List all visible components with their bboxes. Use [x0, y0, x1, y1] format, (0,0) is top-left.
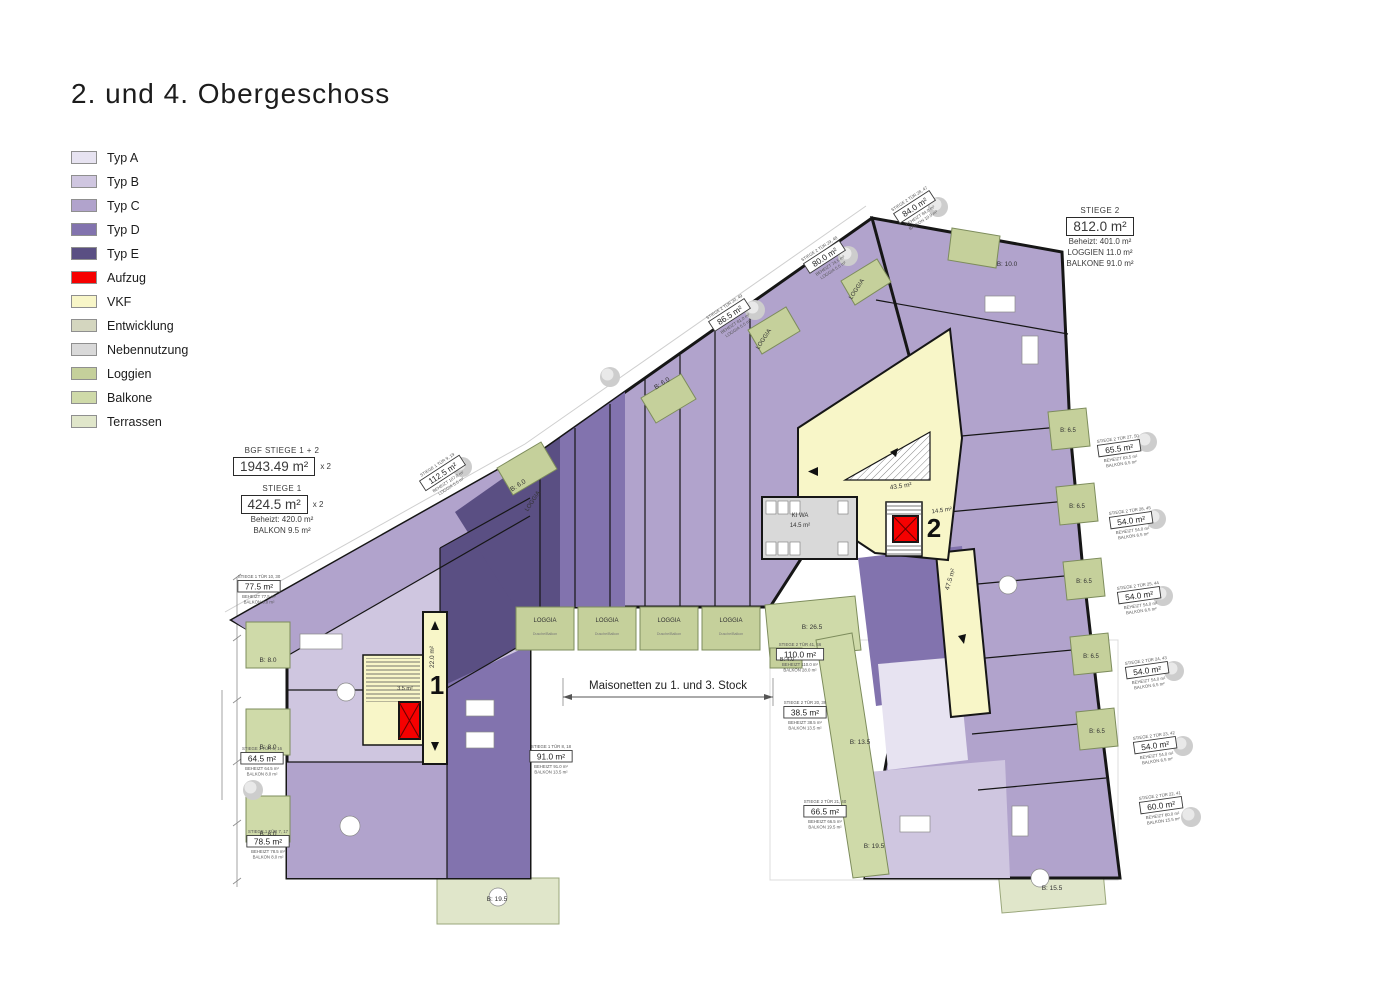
unit-area-value: 78.5 m²	[254, 837, 282, 847]
unit-label: STIEGE 2 TÜR 23, 4254.0 m²BEHEIZT 54.0 m…	[1132, 730, 1179, 766]
plan-area-label: B: 10.0	[997, 261, 1018, 268]
unit-area-value: 77.5 m²	[245, 582, 273, 592]
stair-marker: 2	[927, 513, 941, 543]
unit-label-line: BALKON 19.5 m²	[808, 825, 842, 830]
unit-label-line: BEHEIZT 38.5 m²	[788, 720, 822, 725]
loggia-cell-sub: Dusche/Balkon	[657, 632, 681, 636]
unit-typ-d	[447, 645, 530, 878]
unit-label-line: BALKON 8.0 m²	[247, 772, 278, 777]
unit-label-line: BEHEIZT 64.5 m²	[245, 766, 279, 771]
plan-area-label: B: 6.5	[1069, 504, 1085, 510]
unit-label: STIEGE 2 TÜR 26, 4554.0 m²BEHEIZT 54.0 m…	[1108, 505, 1155, 541]
plan-area-label: B: 15.5	[1042, 885, 1063, 892]
unit-label-door: STIEGE 2 TÜR 20, 39	[784, 700, 827, 705]
unit-label-line: BEHEIZT 78.5 m²	[251, 849, 285, 854]
unit-label: STIEGE 2 TÜR 27, 5065.5 m²BEHEIZT 63.5 m…	[1096, 433, 1143, 469]
unit-label: STIEGE 1 TÜR 10, 3077.5 m²BEHEIZT 77.5 m…	[238, 574, 281, 605]
unit-typ-c	[287, 762, 447, 878]
plan-area-label: 22.0 m²	[429, 645, 436, 668]
unit-label-line: BALKON 8.0 m²	[244, 600, 275, 605]
unit-area-value: 38.5 m²	[791, 708, 819, 718]
unit-label: STIEGE 2 TÜR 21, 4066.5 m²BEHEIZT 66.5 m…	[804, 799, 847, 830]
loggia-cell	[640, 607, 698, 650]
plan-area-label: KI WA	[792, 513, 809, 519]
unit-label-door: STIEGE 2 TÜR 21, 40	[804, 799, 847, 804]
unit-label-line: BALKON 28.0 m²	[783, 668, 817, 673]
loggia-cell-label: LOGGIA	[595, 618, 618, 624]
loggia-cell	[516, 607, 574, 650]
floor-plan-page: 2. und 4. Obergeschoss Typ ATyp BTyp CTy…	[0, 0, 1387, 1000]
stair-marker: 1	[430, 670, 444, 700]
unit-area-value: 66.5 m²	[811, 807, 839, 817]
unit-label-door: STIEGE 1 TÜR 8, 18	[531, 744, 572, 749]
unit-label-door: STIEGE 1 TÜR 10, 30	[238, 574, 281, 579]
plan-area-label: B: 8.0	[260, 744, 277, 751]
loggia-cell-sub: Dusche/Balkon	[533, 632, 557, 636]
plan-area-label: B: 6.5	[1076, 579, 1092, 585]
maisonette-note: Maisonetten zu 1. und 3. Stock	[589, 680, 747, 692]
plan-area-label: B: 6.5	[1089, 729, 1105, 735]
plan-area-label: B: 13.5	[850, 739, 871, 746]
unit-typ-d	[560, 392, 625, 607]
loggia-cell-sub: Dusche/Balkon	[595, 632, 619, 636]
plan-area-label: B: 4.0	[780, 657, 794, 663]
unit-label: STIEGE 1 TÜR 8, 1891.0 m²BEHEIZT 91.0 m²…	[530, 744, 572, 775]
tree	[1181, 807, 1201, 827]
plan-area-label: B: 8.0	[260, 831, 277, 838]
tree	[243, 780, 263, 800]
unit-label: STIEGE 2 TÜR 20, 3938.5 m²BEHEIZT 38.5 m…	[784, 700, 827, 731]
plan-area-label: B: 19.5	[487, 896, 508, 903]
loggia-cell	[702, 607, 760, 650]
unit-label: STIEGE 2 TÜR 25, 4454.0 m²BEHEIZT 54.0 m…	[1116, 580, 1163, 616]
plan-area-label: 3.5 m²	[397, 686, 413, 692]
unit-area-value: 64.5 m²	[248, 754, 276, 764]
tree	[600, 367, 620, 387]
stair-treads-2	[886, 502, 922, 515]
unit-label: STIEGE 2 TÜR 22, 4160.0 m²BEHEIZT 60.0 m…	[1138, 790, 1185, 826]
plan-area-label: B: 26.5	[802, 624, 823, 631]
unit-label-line: BEHEIZT 66.5 m²	[808, 819, 842, 824]
loggia-cell-label: LOGGIA	[657, 618, 680, 624]
loggia-cell-label: LOGGIA	[533, 618, 556, 624]
unit-label-line: BEHEIZT 91.0 m²	[534, 764, 568, 769]
floor-plan-drawing: Maisonetten zu 1. und 3. Stock LOGGIADus…	[0, 0, 1387, 1000]
loggia-cell-sub: Dusche/Balkon	[719, 632, 743, 636]
maisonette-dimension: Maisonetten zu 1. und 3. Stock	[563, 678, 773, 706]
stair-treads-2	[886, 543, 922, 556]
unit-label-line: BALKON 13.5 m²	[534, 770, 568, 775]
unit-area-value: 91.0 m²	[537, 752, 565, 762]
unit-label-line: BEHEIZT 77.5 m²	[242, 594, 276, 599]
plan-area-label: B: 6.5	[1083, 654, 1099, 660]
loggia-cell	[578, 607, 636, 650]
plan-area-label: B: 8.0	[260, 657, 277, 664]
unit-label: STIEGE 2 TÜR 24, 4354.0 m²BEHEIZT 54.0 m…	[1124, 655, 1171, 691]
loggia-cell-label: LOGGIA	[719, 618, 742, 624]
unit-label-line: BALKON 8.0 m²	[253, 855, 284, 860]
stair-treads-1	[366, 658, 420, 702]
unit-label-line: BALKON 13.5 m²	[788, 726, 822, 731]
plan-area-label: B: 6.5	[1060, 428, 1076, 434]
plan-area-label: B: 19.5	[864, 843, 885, 850]
plan-area-label: 14.5 m²	[790, 523, 810, 529]
unit-label-door: STIEGE 2 TÜR 41, 46	[779, 642, 822, 647]
